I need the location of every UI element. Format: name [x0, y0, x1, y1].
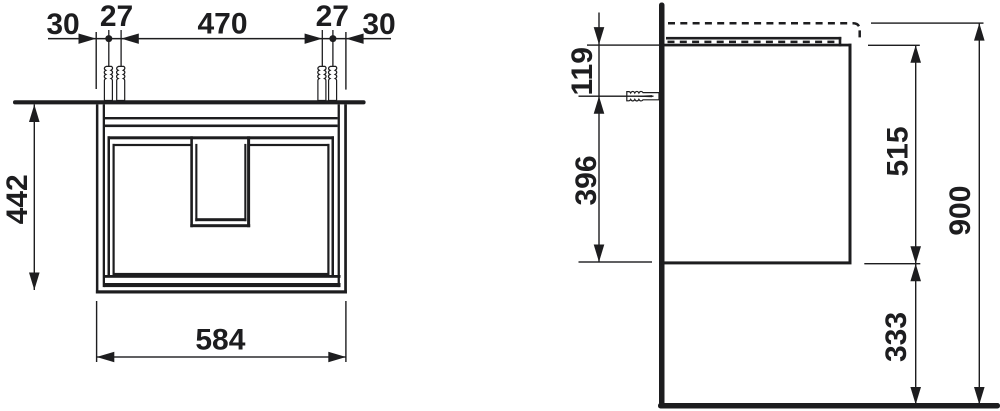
svg-text:900: 900	[944, 186, 977, 236]
svg-text:584: 584	[195, 323, 245, 356]
svg-text:442: 442	[1, 174, 34, 224]
svg-text:27: 27	[100, 0, 133, 33]
svg-text:27: 27	[316, 0, 349, 33]
svg-text:396: 396	[570, 155, 603, 205]
svg-text:30: 30	[46, 8, 79, 41]
svg-text:333: 333	[880, 312, 913, 362]
svg-text:470: 470	[197, 8, 247, 41]
svg-text:30: 30	[362, 8, 395, 41]
svg-text:119: 119	[566, 47, 599, 95]
svg-text:515: 515	[882, 126, 915, 176]
